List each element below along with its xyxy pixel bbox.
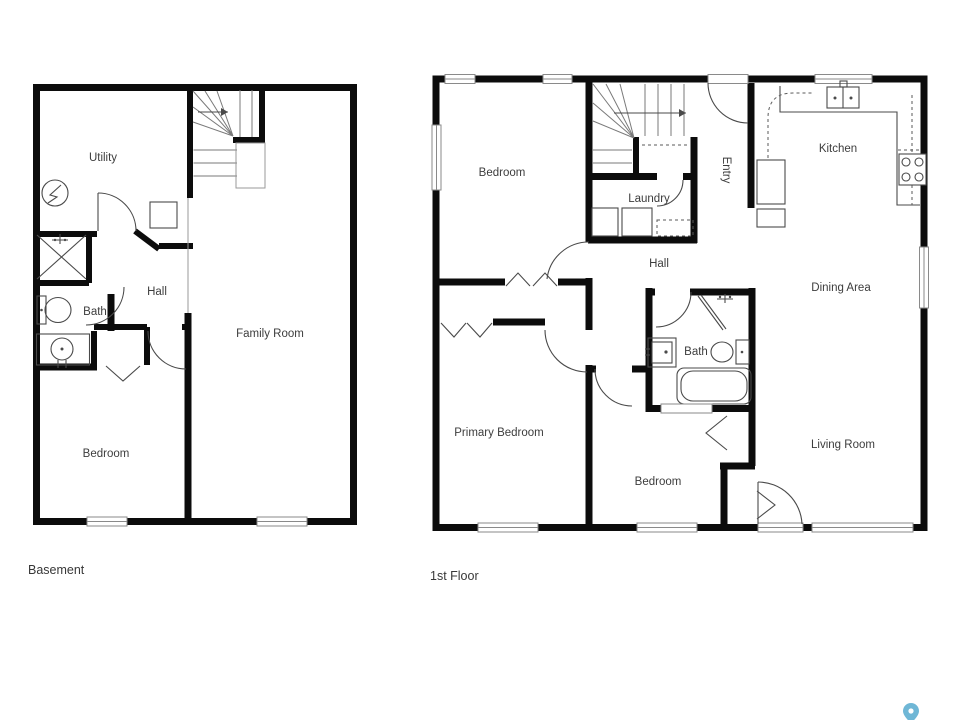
room-label-family-room: Family Room: [236, 328, 304, 340]
shower-icon: [37, 234, 86, 279]
first-floor-bath-door: [656, 292, 691, 327]
entry-door: [708, 83, 748, 123]
basement-closet-door-icon: [106, 366, 140, 381]
laundry-appliance-space: [657, 220, 693, 236]
room-label-bath-first: Bath: [684, 346, 708, 358]
toilet-icon: [37, 296, 71, 324]
room-label-laundry: Laundry: [628, 193, 670, 205]
room-label-primary-bedroom: Primary Bedroom: [454, 427, 543, 439]
top-bedroom-closet-door-icon: [506, 273, 557, 286]
room-label-bedroom-bottom: Bedroom: [635, 476, 682, 488]
toilet-first-icon: [711, 340, 749, 364]
basement-bedroom-door: [148, 331, 186, 369]
stove-icon: [899, 154, 926, 185]
sink-icon: [37, 334, 90, 368]
room-label-living-room: Living Room: [811, 439, 875, 451]
middle-bedroom-closet-door-icon: [706, 416, 727, 450]
map-pin-icon: [903, 703, 919, 720]
room-label-hall-first: Hall: [649, 258, 669, 270]
room-label-hall-basement: Hall: [147, 286, 167, 298]
floor-plan-canvas: Utility Hall Bath Bedroom Family Room Ba…: [0, 0, 960, 720]
room-label-bath-basement: Bath: [83, 306, 107, 318]
first-floor-caption: 1st Floor: [430, 569, 479, 583]
washer-icon: [592, 208, 618, 236]
room-label-utility: Utility: [89, 152, 117, 164]
room-label-bedroom-basement: Bedroom: [83, 448, 130, 460]
top-bedroom-door: [547, 242, 589, 279]
primary-bedroom-door: [545, 330, 587, 372]
room-label-kitchen: Kitchen: [819, 143, 857, 155]
basement-walls: [33, 84, 354, 522]
dryer-icon: [622, 208, 652, 236]
first-floor-stairs-icon: [592, 84, 690, 163]
basement-plan: Utility Hall Bath Bedroom Family Room Ba…: [28, 84, 354, 577]
water-heater-icon: [150, 202, 177, 228]
corner-shower-icon: [698, 294, 733, 330]
basement-caption: Basement: [28, 563, 85, 577]
living-room-door: [757, 482, 802, 524]
bath-pocket-door: [661, 404, 712, 413]
kitchen-sink-icon: [827, 81, 859, 108]
electrical-panel-icon: [42, 180, 68, 206]
utility-door: [98, 193, 136, 231]
room-label-dining-area: Dining Area: [811, 282, 871, 294]
floor-plan-page: Utility Hall Bath Bedroom Family Room Ba…: [0, 0, 960, 720]
room-label-entry: Entry: [720, 157, 732, 184]
room-label-bedroom-top: Bedroom: [479, 167, 526, 179]
primary-closet-door-icon: [441, 323, 492, 337]
bathtub-icon: [677, 368, 751, 404]
middle-bedroom-door: [595, 369, 632, 406]
first-floor-plan: Bedroom Laundry Entry Kitchen Hall Dinin…: [430, 75, 929, 584]
